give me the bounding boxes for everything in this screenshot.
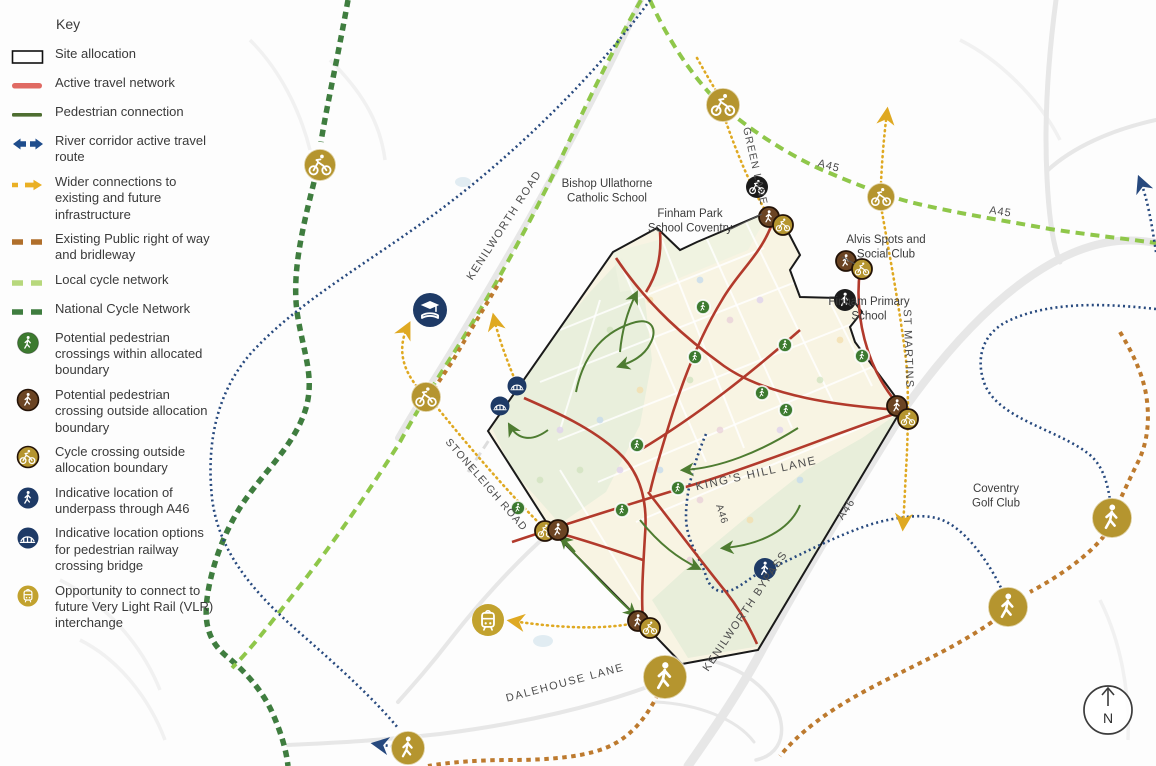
place-label-alvis: Alvis Spots and xyxy=(846,234,925,246)
place-label-finham_park: Finham Park xyxy=(657,208,722,220)
site-allocation-area xyxy=(488,211,903,664)
cycle-crossing-outside-icon xyxy=(773,215,793,235)
brown-pedestrian-circle-icon xyxy=(10,387,46,412)
road-label-st_martins: ST MARTINS xyxy=(901,309,916,389)
key-title: Key xyxy=(56,16,232,32)
cycle-crossing-icon xyxy=(304,149,336,181)
education-icon xyxy=(413,293,447,327)
key-item-national-cycle: National Cycle Network xyxy=(10,301,232,322)
pedestrian-crossing-within-icon xyxy=(615,503,629,517)
road xyxy=(288,680,666,745)
key-label: Indicative location options for pedestri… xyxy=(55,525,219,574)
key-label: Potential pedestrian crossings within al… xyxy=(55,330,219,379)
pedestrian-crossing-within-icon xyxy=(755,386,769,400)
key-item-crossing-outside: Potential pedestrian crossing outside al… xyxy=(10,387,232,436)
active-travel-line-icon xyxy=(10,75,46,96)
background-street xyxy=(250,40,310,150)
pedestrian-crossing-within-icon xyxy=(778,338,792,352)
key-label: Active travel network xyxy=(55,75,219,91)
place-label-alvis: Social Club xyxy=(857,249,915,261)
key-item-railway-bridge: Indicative location options for pedestri… xyxy=(10,525,232,574)
cycle-crossing-outside-icon xyxy=(898,409,918,429)
prow-route xyxy=(1030,536,1104,592)
local-cycle-dashes-icon xyxy=(10,272,46,293)
cycle-crossing-outside-icon xyxy=(852,259,872,279)
national-cycle-route xyxy=(321,0,348,142)
prow-route xyxy=(428,686,662,766)
pedestrian-crossing-within-icon xyxy=(688,350,702,364)
railway-bridge-icon xyxy=(491,397,510,416)
cycle-crossing-icon xyxy=(867,183,895,211)
key-item-active-travel: Active travel network xyxy=(10,75,232,96)
road xyxy=(700,658,782,760)
pedestrian-crossing-within-icon xyxy=(630,438,644,452)
key-item-underpass: Indicative location of underpass through… xyxy=(10,485,232,518)
road-label-a45_west: A45 xyxy=(816,157,841,174)
map-key: Key Site allocation Active travel networ… xyxy=(10,16,232,640)
pedestrian-route-icon xyxy=(391,731,425,765)
key-label: Pedestrian connection xyxy=(55,104,219,120)
key-label: Site allocation xyxy=(55,46,219,62)
key-item-river-corridor: River corridor active travel route xyxy=(10,133,232,166)
river-corridor-route xyxy=(981,305,1156,500)
key-label: Existing Public right of way and bridlew… xyxy=(55,231,219,264)
green-pedestrian-circle-icon xyxy=(10,330,46,355)
vlr-interchange-icon xyxy=(472,604,504,636)
pedestrian-line-icon xyxy=(10,104,46,125)
yellow-cycle-circle-icon xyxy=(10,444,46,469)
key-item-site-allocation: Site allocation xyxy=(10,46,232,67)
place-label-bishop: Catholic School xyxy=(567,193,647,205)
railway-bridge-icon xyxy=(508,377,527,396)
wider-connection-arrow xyxy=(881,112,887,183)
blue-bridge-circle-icon xyxy=(10,525,46,550)
river-corridor-arrows-icon xyxy=(10,133,46,154)
wider-connection-arrow xyxy=(402,326,420,390)
prow-route xyxy=(780,622,992,756)
key-label: Wider connections to existing and future… xyxy=(55,174,219,223)
key-item-cycle-crossing-outside: Cycle crossing outside allocation bounda… xyxy=(10,444,232,477)
pedestrian-route-icon xyxy=(988,587,1028,627)
key-label: Cycle crossing outside allocation bounda… xyxy=(55,444,219,477)
key-item-vlr: Opportunity to connect to future Very Li… xyxy=(10,583,232,632)
place-label-golf: Golf Club xyxy=(972,498,1020,510)
wider-connection-arrow xyxy=(512,621,636,627)
pond xyxy=(455,177,471,187)
site-allocation-swatch-icon xyxy=(10,46,46,67)
key-label: Opportunity to connect to future Very Li… xyxy=(55,583,219,632)
pedestrian-route-icon xyxy=(1092,498,1132,538)
place-label-golf: Coventry xyxy=(973,483,1019,495)
key-item-prow: Existing Public right of way and bridlew… xyxy=(10,231,232,264)
cycle-crossing-outside-icon xyxy=(640,618,660,638)
key-label: Local cycle network xyxy=(55,272,219,288)
wider-connections-arrow-icon xyxy=(10,174,46,195)
pedestrian-route-icon xyxy=(643,655,687,699)
pedestrian-crossing-within-icon xyxy=(855,349,869,363)
pedestrian-crossing-within-icon xyxy=(779,403,793,417)
place-label-finham_park: School Coventry xyxy=(648,223,733,235)
pedestrian-crossing-within-icon xyxy=(696,300,710,314)
key-item-crossing-within: Potential pedestrian crossings within al… xyxy=(10,330,232,379)
place-label-bishop: Bishop Ullathorne xyxy=(562,178,653,190)
map-stage: Bishop UllathorneCatholic SchoolFinham P… xyxy=(0,0,1156,766)
key-label: National Cycle Network xyxy=(55,301,219,317)
background-street xyxy=(330,60,385,160)
key-item-pedestrian-connection: Pedestrian connection xyxy=(10,104,232,125)
key-label: Potential pedestrian crossing outside al… xyxy=(55,387,219,436)
yellow-tram-circle-icon xyxy=(10,583,46,608)
road xyxy=(905,240,1156,408)
national-cycle-dashes-icon xyxy=(10,301,46,322)
background-street xyxy=(80,640,165,740)
prow-route xyxy=(1116,332,1148,508)
key-label: River corridor active travel route xyxy=(55,133,219,166)
key-item-local-cycle: Local cycle network xyxy=(10,272,232,293)
road xyxy=(1046,0,1060,262)
cycle-crossing-icon xyxy=(411,382,441,412)
north-arrow: N xyxy=(1084,686,1132,734)
prow-dashes-icon xyxy=(10,231,46,252)
wider-connection-arrow xyxy=(494,318,515,380)
key-item-wider-connections: Wider connections to existing and future… xyxy=(10,174,232,223)
pedestrian-crossing-outside-icon xyxy=(548,520,568,540)
cycle-crossing-icon xyxy=(706,88,740,122)
north-label: N xyxy=(1103,710,1113,726)
pond xyxy=(533,635,553,647)
pedestrian-crossing-within-icon xyxy=(671,481,685,495)
blue-pedestrian-circle-icon xyxy=(10,485,46,510)
place-label-finham_primary: School xyxy=(851,311,886,323)
place-label-finham_primary: Finham Primary xyxy=(828,296,909,308)
road xyxy=(1048,120,1156,170)
key-label: Indicative location of underpass through… xyxy=(55,485,219,518)
